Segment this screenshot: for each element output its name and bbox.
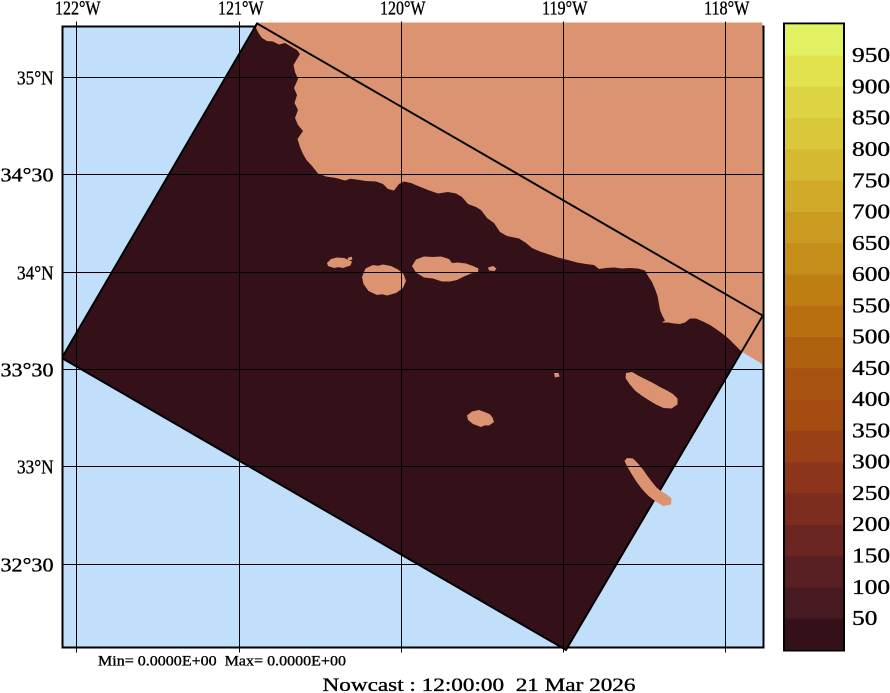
svg-text:150: 150 — [852, 544, 890, 568]
svg-text:Min= 0.0000E+00 Max= 0.0000E+: Min= 0.0000E+00 Max= 0.0000E+00 — [98, 653, 346, 669]
svg-text:118°W: 118°W — [704, 0, 750, 20]
svg-text:33°30: 33°30 — [1, 359, 54, 381]
svg-text:950: 950 — [852, 43, 890, 67]
svg-text:121°W: 121°W — [218, 0, 264, 20]
svg-text:122°W: 122°W — [55, 0, 101, 20]
svg-text:32°30: 32°30 — [1, 554, 54, 576]
svg-text:800: 800 — [852, 137, 890, 161]
svg-text:34°N: 34°N — [17, 262, 54, 284]
svg-text:100: 100 — [852, 575, 890, 599]
svg-text:120°W: 120°W — [380, 0, 426, 20]
svg-text:34°30: 34°30 — [1, 164, 54, 186]
svg-text:35°N: 35°N — [17, 67, 54, 89]
svg-text:119°W: 119°W — [542, 0, 588, 20]
svg-text:600: 600 — [852, 262, 890, 286]
svg-text:850: 850 — [852, 106, 890, 130]
svg-text:200: 200 — [852, 512, 890, 536]
svg-text:500: 500 — [852, 325, 890, 349]
svg-text:33°N: 33°N — [17, 456, 54, 478]
svg-text:350: 350 — [852, 418, 890, 442]
svg-text:900: 900 — [852, 75, 890, 99]
svg-text:650: 650 — [852, 231, 890, 255]
svg-text:250: 250 — [852, 481, 890, 505]
svg-text:400: 400 — [852, 387, 890, 411]
svg-text:450: 450 — [852, 356, 890, 380]
svg-text:50: 50 — [852, 606, 877, 630]
svg-text:750: 750 — [852, 168, 890, 192]
svg-text:300: 300 — [852, 450, 890, 474]
svg-text:700: 700 — [852, 200, 890, 224]
svg-text:550: 550 — [852, 293, 890, 317]
svg-text:Nowcast : 12:00:00 21 Mar 202: Nowcast : 12:00:00 21 Mar 2026 — [323, 675, 636, 693]
